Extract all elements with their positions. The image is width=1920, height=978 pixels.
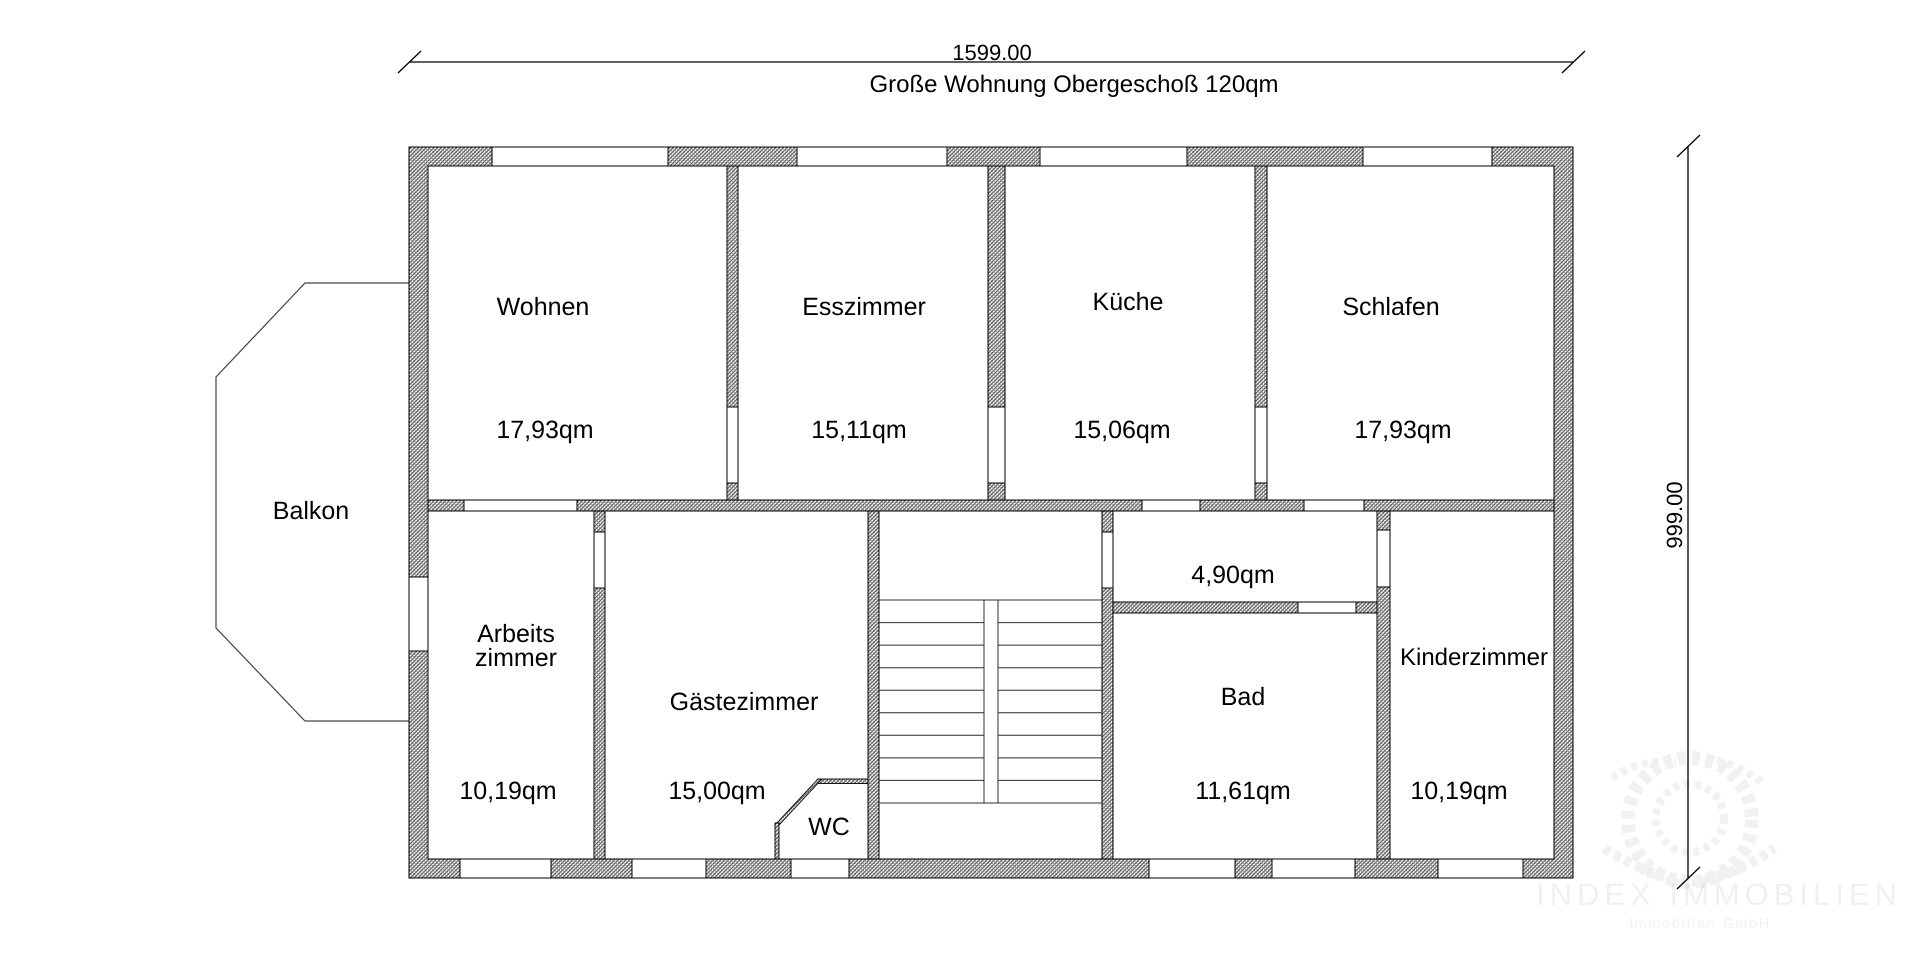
svg-text:Gästezimmer: Gästezimmer — [670, 688, 819, 716]
svg-text:Kinderzimmer: Kinderzimmer — [1400, 644, 1548, 671]
svg-text:zimmer: zimmer — [475, 644, 557, 672]
svg-text:Wohnen: Wohnen — [497, 293, 590, 321]
svg-text:Küche: Küche — [1093, 288, 1164, 316]
svg-text:11,61qm: 11,61qm — [1195, 777, 1290, 805]
svg-text:INDEX IMMOBILIEN: INDEX IMMOBILIEN — [1536, 877, 1902, 912]
svg-text:Bad: Bad — [1221, 683, 1265, 711]
svg-text:Große Wohnung Obergeschoß 120q: Große Wohnung Obergeschoß 120qm — [869, 71, 1278, 98]
svg-text:17,93qm: 17,93qm — [1354, 416, 1451, 444]
svg-text:Immobilien GmbH: Immobilien GmbH — [1629, 915, 1771, 931]
svg-text:Schlafen: Schlafen — [1342, 293, 1439, 321]
svg-text:Esszimmer: Esszimmer — [802, 293, 926, 321]
svg-text:15,00qm: 15,00qm — [668, 777, 765, 805]
svg-text:999.00: 999.00 — [1662, 481, 1687, 548]
svg-text:WC: WC — [808, 813, 850, 841]
svg-text:Balkon: Balkon — [273, 497, 349, 525]
svg-text:10,19qm: 10,19qm — [1410, 777, 1507, 805]
svg-text:17,93qm: 17,93qm — [496, 416, 593, 444]
svg-text:1599.00: 1599.00 — [952, 40, 1032, 65]
svg-text:10,19qm: 10,19qm — [459, 777, 556, 805]
svg-text:4,90qm: 4,90qm — [1191, 561, 1274, 589]
svg-text:15,06qm: 15,06qm — [1073, 416, 1170, 444]
svg-text:15,11qm: 15,11qm — [811, 416, 906, 444]
